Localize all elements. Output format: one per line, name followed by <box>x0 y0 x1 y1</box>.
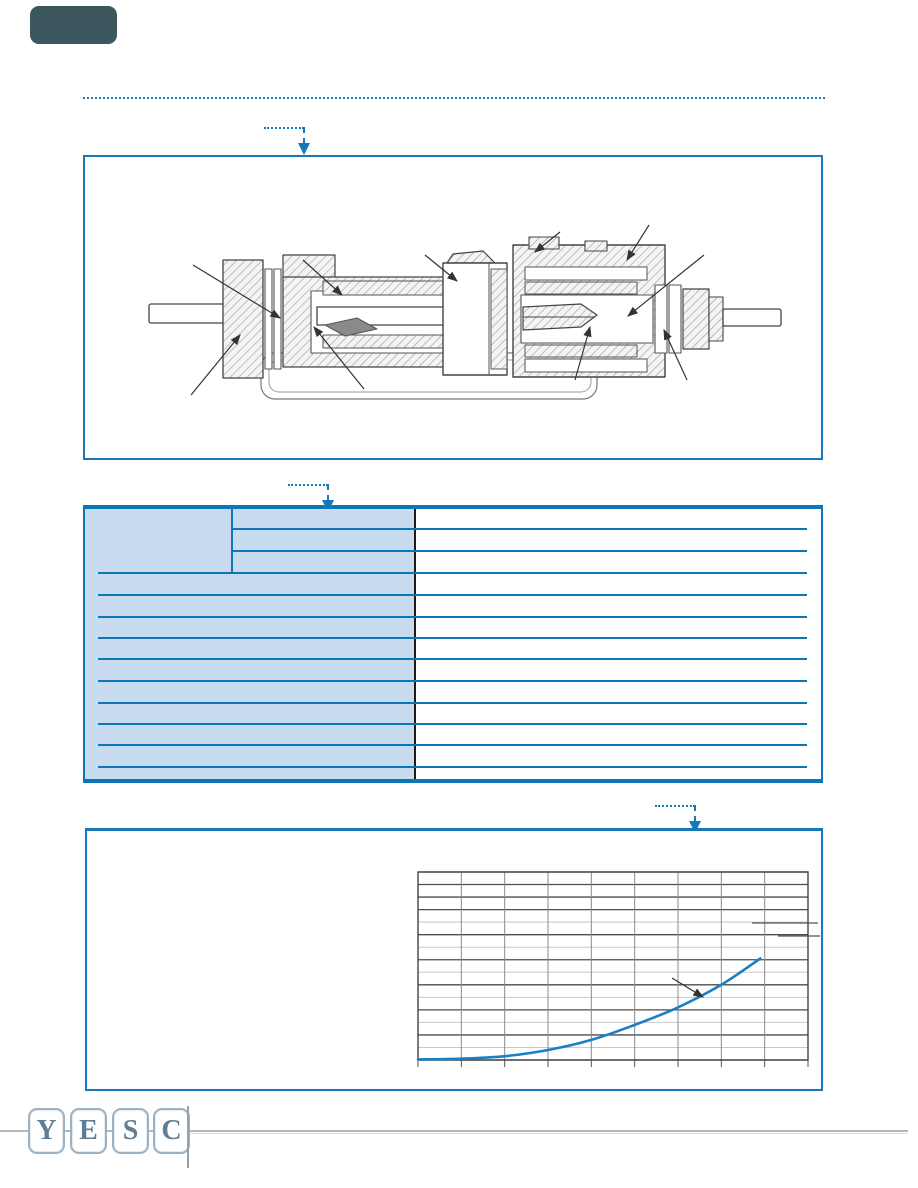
table-row-line <box>98 572 807 574</box>
diagram-callout-arrow <box>264 124 316 158</box>
table-row-line <box>98 616 807 618</box>
dotted-divider-rule <box>83 97 825 99</box>
callout-dotted-line <box>264 127 304 129</box>
spec-table-header-divider <box>231 509 233 572</box>
table-row-line <box>98 744 807 746</box>
mating-force-curve <box>418 959 760 1060</box>
logo-letter-e: E <box>70 1108 107 1154</box>
callout-dashed-line <box>327 484 329 501</box>
table-row-line <box>98 702 807 704</box>
jack-cross-section <box>513 237 781 377</box>
callout-dashed-line <box>303 127 305 144</box>
datasheet-page: Y E S C <box>0 0 918 1188</box>
table-row-line <box>98 637 807 639</box>
mating-force-chart <box>85 828 823 1091</box>
callout-dashed-line <box>694 805 696 822</box>
table-row-line <box>98 723 807 725</box>
callout-dotted-line <box>288 484 328 486</box>
logo-letter: Y <box>36 1115 56 1147</box>
table-row-line <box>98 766 807 768</box>
logo-letter-s: S <box>112 1108 149 1154</box>
footer-vertical-rule <box>187 1106 189 1168</box>
table-row-line <box>233 550 807 552</box>
logo-letter-y: Y <box>28 1108 65 1154</box>
curve-annotation-arrow <box>672 978 703 997</box>
table-row-line <box>233 528 807 530</box>
chart-grid-vertical <box>418 872 808 1067</box>
logo-letter: S <box>123 1115 139 1147</box>
callout-arrowhead-icon <box>298 143 310 155</box>
logo-letter: E <box>79 1115 98 1147</box>
header-accent-block <box>30 6 117 44</box>
connector-diagram-panel <box>83 155 823 460</box>
table-row-line <box>98 594 807 596</box>
table-row-line <box>98 680 807 682</box>
footer-rule-shadow <box>188 1133 908 1134</box>
table-row-line <box>98 658 807 660</box>
spec-table <box>83 505 823 783</box>
callout-dotted-line <box>655 805 695 807</box>
line-chart <box>87 831 821 1089</box>
logo-letter-c: C <box>153 1108 190 1154</box>
logo-letter: C <box>161 1115 181 1147</box>
connector-cross-section-drawing <box>85 157 821 458</box>
